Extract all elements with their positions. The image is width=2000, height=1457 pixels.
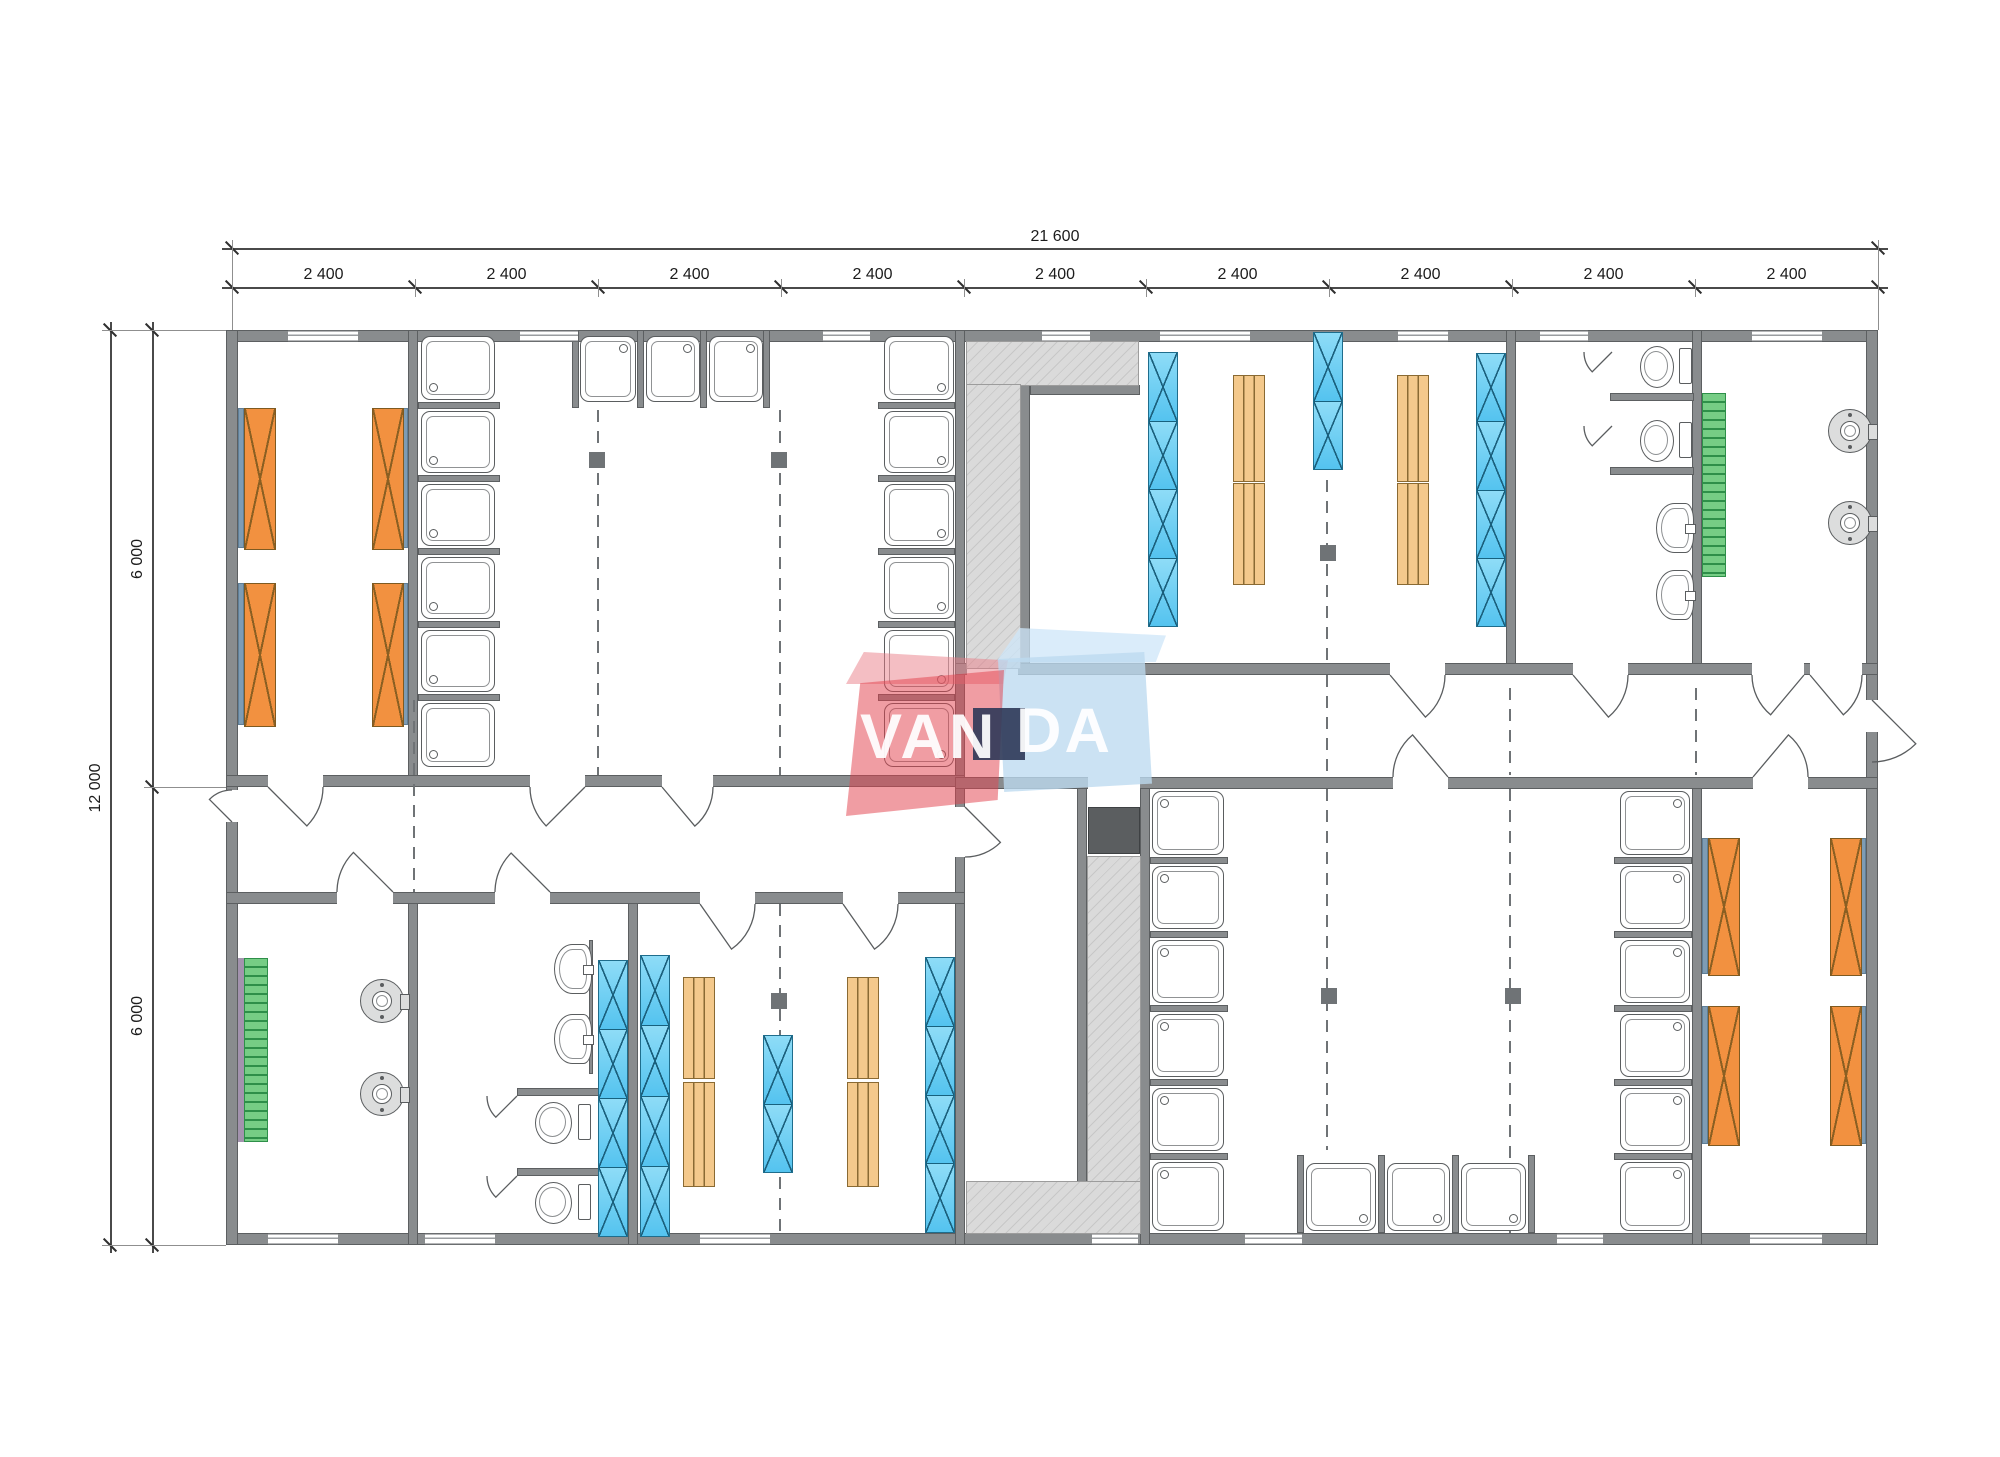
dim-module-width: 2 400 (1400, 266, 1440, 284)
dim-module-width: 2 400 (1035, 266, 1075, 284)
dim-module-width: 2 400 (486, 266, 526, 284)
extension-line (1878, 240, 1879, 330)
extension-line (781, 279, 782, 297)
dim-module-width: 2 400 (1766, 266, 1806, 284)
extension-line (598, 279, 599, 297)
dimension-line (110, 322, 112, 1253)
dim-total-height: 12 000 (87, 763, 105, 812)
dim-total-width: 21 600 (1031, 228, 1080, 246)
dim-module-width: 2 400 (669, 266, 709, 284)
extension-line (1512, 279, 1513, 297)
dim-module-width: 2 400 (852, 266, 892, 284)
dimension-line (222, 287, 1888, 289)
extension-line (1695, 279, 1696, 297)
dim-module-width: 2 400 (303, 266, 343, 284)
extension-line (232, 240, 233, 330)
dim-module-width: 2 400 (1217, 266, 1257, 284)
dim-half-height: 6 000 (129, 996, 147, 1036)
extension-line (102, 330, 226, 331)
dim-module-width: 2 400 (1583, 266, 1623, 284)
extension-line (1329, 279, 1330, 297)
extension-line (102, 1245, 226, 1246)
dim-half-height: 6 000 (129, 538, 147, 578)
extension-line (1146, 279, 1147, 297)
extension-line (964, 279, 965, 297)
dimension-layer: 21 6002 4002 4002 4002 4002 4002 4002 40… (0, 0, 2000, 1457)
extension-line (144, 787, 226, 788)
floor-plan-canvas: 21 6002 4002 4002 4002 4002 4002 4002 40… (0, 0, 2000, 1457)
dimension-line (222, 248, 1888, 250)
extension-line (415, 279, 416, 297)
